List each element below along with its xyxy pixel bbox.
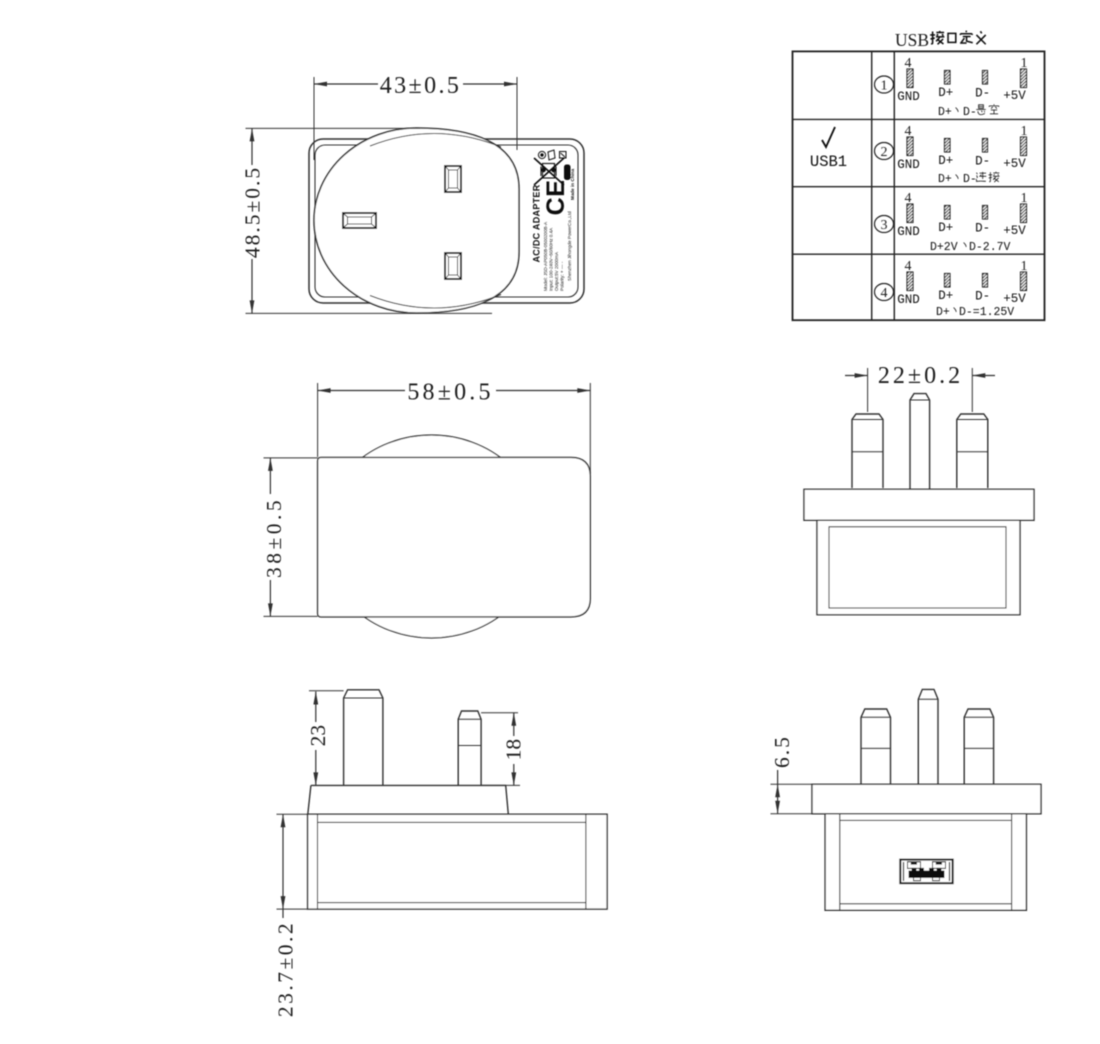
svg-text:D+: D+ bbox=[938, 86, 953, 100]
svg-text:GND: GND bbox=[897, 225, 920, 239]
svg-text:D-2.7V: D-2.7V bbox=[969, 241, 1011, 254]
svg-text:D+: D+ bbox=[938, 173, 952, 186]
svg-text:3: 3 bbox=[881, 218, 888, 233]
svg-text:6.5: 6.5 bbox=[770, 735, 794, 768]
svg-text:CE: CE bbox=[542, 180, 570, 216]
svg-text:D-: D- bbox=[975, 290, 990, 304]
svg-text:18: 18 bbox=[502, 739, 526, 761]
svg-text:D-: D- bbox=[975, 155, 990, 169]
svg-text:D+: D+ bbox=[938, 106, 952, 119]
svg-text:Model: JSD-AP050B-0500200B-A: Model: JSD-AP050B-0500200B-A bbox=[543, 221, 548, 291]
svg-text:D+: D+ bbox=[938, 154, 953, 168]
svg-text:22±0.2: 22±0.2 bbox=[878, 363, 963, 389]
svg-text:USB: USB bbox=[895, 30, 929, 50]
svg-text:Polarity: + --- -: Polarity: + --- - bbox=[560, 261, 565, 291]
svg-text:+5V: +5V bbox=[1003, 157, 1026, 171]
svg-text:Input: 100-240V~50/60Hz 0.4A: Input: 100-240V~50/60Hz 0.4A bbox=[549, 227, 554, 291]
svg-text:23.7±0.2: 23.7±0.2 bbox=[274, 921, 298, 1017]
svg-text:23: 23 bbox=[306, 725, 330, 747]
svg-text:1: 1 bbox=[881, 79, 888, 94]
svg-text:USB1: USB1 bbox=[810, 153, 847, 171]
svg-text:48.5±0.5: 48.5±0.5 bbox=[241, 166, 265, 258]
svg-text:58±0.5: 58±0.5 bbox=[407, 380, 493, 406]
svg-text:38±0.5: 38±0.5 bbox=[262, 497, 286, 578]
svg-text:D+: D+ bbox=[938, 289, 953, 303]
svg-text:AC/DC ADAPTER: AC/DC ADAPTER bbox=[532, 184, 542, 262]
svg-text:D-: D- bbox=[963, 106, 977, 119]
svg-text:+5V: +5V bbox=[1003, 292, 1026, 306]
svg-text:43±0.5: 43±0.5 bbox=[380, 73, 462, 99]
svg-text:D-: D- bbox=[975, 87, 990, 101]
svg-text:2: 2 bbox=[881, 145, 888, 160]
svg-text:D+: D+ bbox=[936, 306, 950, 319]
svg-text:GND: GND bbox=[897, 293, 920, 307]
svg-text:Output:5V 2000mA: Output:5V 2000mA bbox=[554, 251, 559, 291]
svg-text:D+: D+ bbox=[938, 221, 953, 235]
svg-text:GND: GND bbox=[897, 90, 920, 104]
svg-text:4: 4 bbox=[881, 286, 888, 301]
svg-text:Made in China: Made in China bbox=[570, 168, 575, 200]
svg-text:D-: D- bbox=[963, 173, 977, 186]
svg-text:D+2V: D+2V bbox=[930, 241, 958, 254]
svg-text:GND: GND bbox=[897, 158, 920, 172]
svg-text:D-=1.25V: D-=1.25V bbox=[959, 306, 1014, 319]
svg-text:+5V: +5V bbox=[1003, 89, 1026, 103]
svg-text:+5V: +5V bbox=[1003, 224, 1026, 238]
svg-text:Shenzhen Jihongde PowerCo.,Ltd: Shenzhen Jihongde PowerCo.,Ltd bbox=[567, 211, 572, 281]
svg-text:D-: D- bbox=[975, 222, 990, 236]
